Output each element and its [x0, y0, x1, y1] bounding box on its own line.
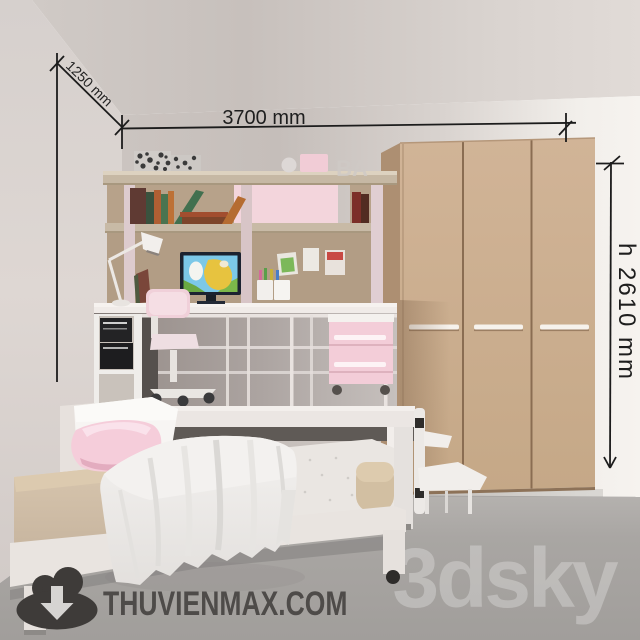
svg-text:BA: BA — [336, 156, 368, 181]
svg-text:3dsky: 3dsky — [392, 531, 618, 625]
svg-text:3700 mm: 3700 mm — [222, 107, 305, 129]
svg-text:h 2610 mm: h 2610 mm — [613, 243, 640, 381]
svg-text:THUVIENMAX.COM: THUVIENMAX.COM — [103, 585, 348, 623]
